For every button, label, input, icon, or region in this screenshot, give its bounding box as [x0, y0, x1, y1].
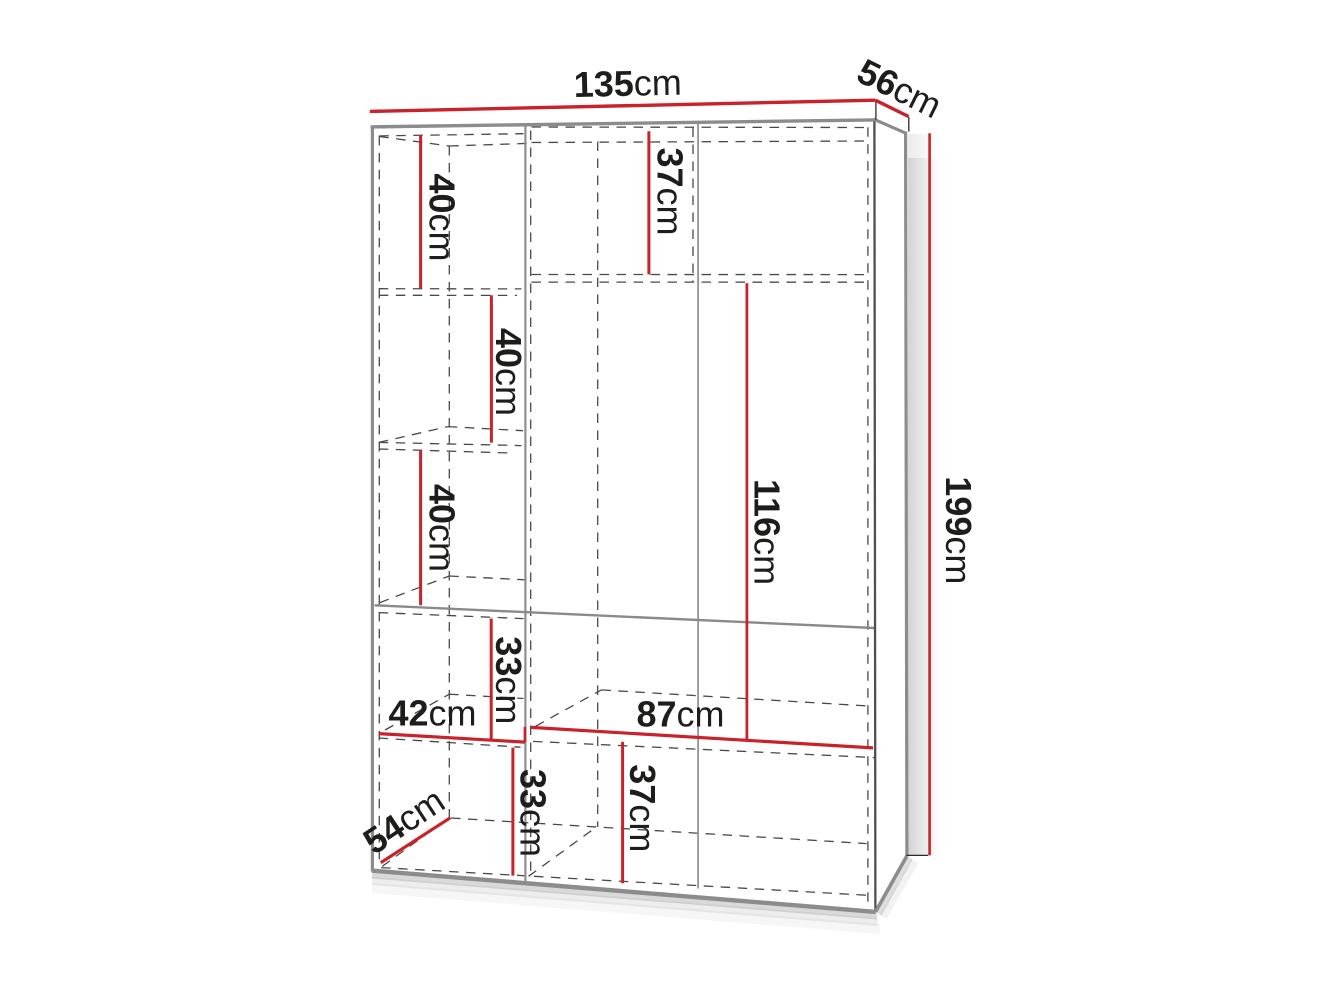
svg-text:87cm: 87cm: [636, 694, 724, 735]
svg-text:33cm: 33cm: [513, 769, 554, 857]
svg-text:135cm: 135cm: [573, 62, 682, 105]
svg-text:40cm: 40cm: [422, 484, 463, 572]
svg-text:199cm: 199cm: [938, 476, 979, 584]
svg-text:37cm: 37cm: [622, 764, 663, 852]
svg-text:40cm: 40cm: [488, 328, 529, 416]
svg-text:42cm: 42cm: [388, 693, 476, 734]
svg-text:40cm: 40cm: [422, 174, 463, 262]
svg-text:116cm: 116cm: [747, 479, 788, 585]
svg-text:37cm: 37cm: [650, 148, 691, 236]
svg-text:33cm: 33cm: [488, 636, 529, 724]
